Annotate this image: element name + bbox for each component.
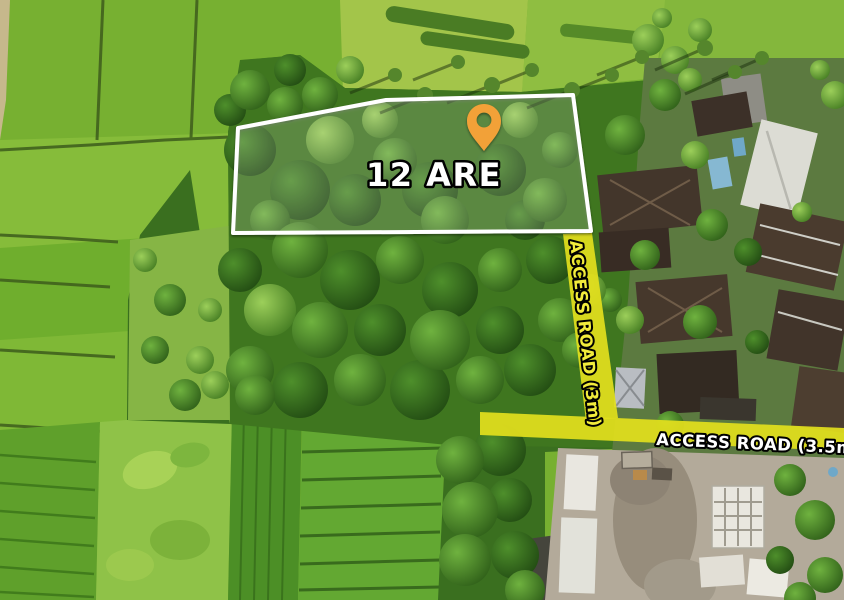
aerial-photo-stage: ACCESS ROAD (3m) ACCESS ROAD (3.5m) 12 A… [0,0,844,600]
plot-area-label: 12 ARE [366,156,502,194]
aerial-photo: ACCESS ROAD (3m) ACCESS ROAD (3.5m) 12 A… [0,0,844,600]
